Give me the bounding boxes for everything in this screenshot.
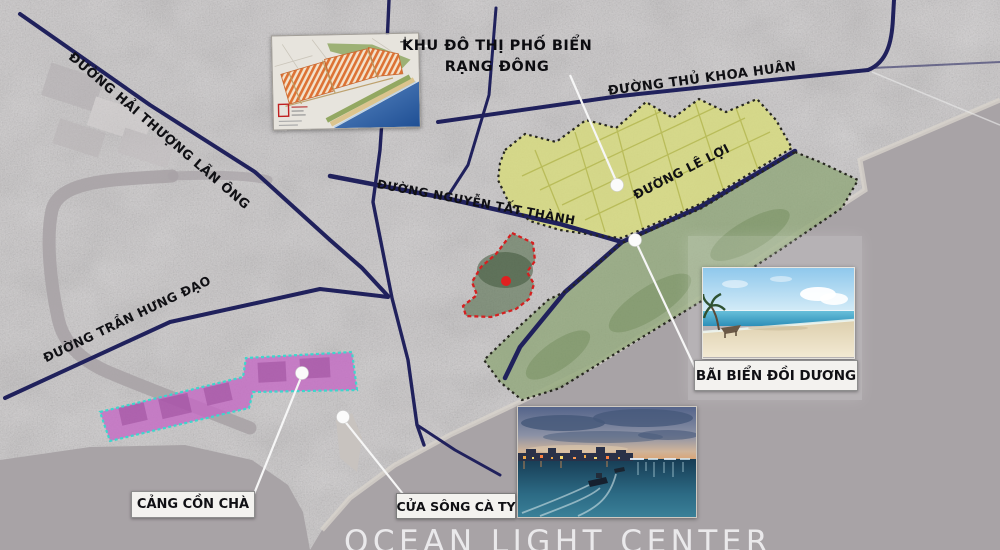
project-title-label: KHU ĐÔ THỊ PHỐ BIỂN RẠNG ĐÔNG bbox=[402, 36, 592, 78]
callout-dot-beach bbox=[629, 234, 642, 247]
project-title-line1: KHU ĐÔ THỊ PHỐ BIỂN bbox=[402, 36, 592, 57]
project-title-line2: RẠNG ĐÔNG bbox=[402, 57, 592, 78]
inset-masterplan bbox=[271, 32, 421, 130]
beach-callout-label: BÃI BIỂN ĐỒI DƯƠNG bbox=[694, 360, 858, 391]
river-mouth-callout-label: CỬA SÔNG CÀ TY bbox=[396, 493, 516, 519]
harbor-water bbox=[518, 459, 696, 517]
callout-line-port bbox=[254, 375, 302, 494]
callout-line-river-mouth bbox=[343, 419, 403, 494]
callout-dot-river-mouth bbox=[337, 411, 350, 424]
callout-dot-yellow-zone bbox=[611, 179, 624, 192]
callout-dot-port bbox=[296, 367, 309, 380]
masterplan-map: KHU ĐÔ THỊ PHỐ BIỂN RẠNG ĐÔNG ĐƯỜNG HẢI … bbox=[0, 0, 1000, 550]
beach-photo bbox=[702, 267, 855, 359]
port-callout-label: CẢNG CỒN CHÀ bbox=[131, 491, 255, 518]
harbor-photo bbox=[517, 406, 697, 518]
callout-line-beach bbox=[635, 240, 697, 372]
watermark-text: OCEAN LIGHT CENTER bbox=[344, 524, 772, 550]
